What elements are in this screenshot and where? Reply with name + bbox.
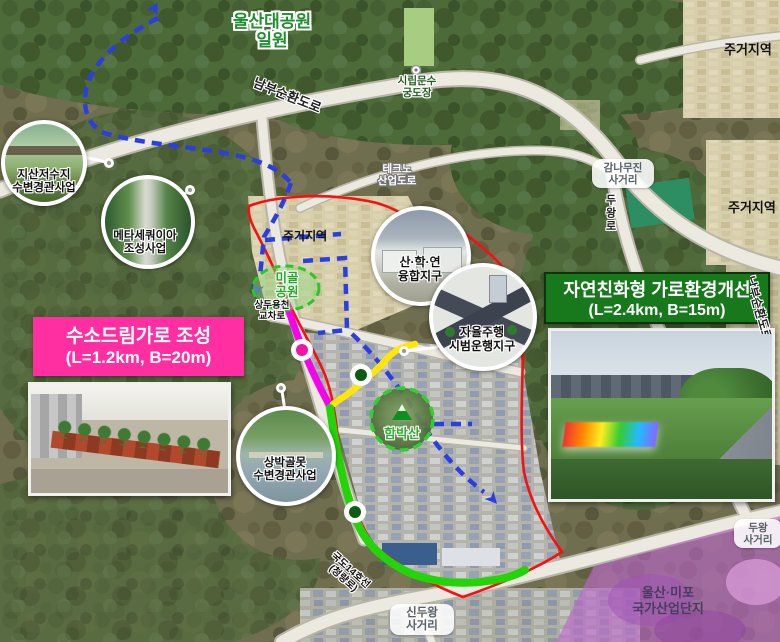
eco-project-spec: (L=2.4km, B=15m) [546, 301, 768, 320]
project-map: 수소드림가로 조성 (L=1.2km, B=20m) 자연친화형 가로환경개선 … [0, 0, 780, 642]
hydrogen-route-marker [291, 339, 313, 361]
connector-dot [399, 346, 409, 356]
gamnamu-intersection-bubble: 감나무진 사거리 [592, 159, 654, 188]
hydrogen-project-photo [28, 382, 231, 496]
callout-circle-sangbak [236, 406, 336, 506]
migol-park-label: 미골 공원 [264, 272, 310, 299]
eco-route-marker-bottom [344, 501, 366, 523]
road-label-nambu-right: 남부순환도로 [750, 274, 776, 334]
callout-label-meta: 메타세쿼이아 조성사업 [94, 230, 196, 255]
connector-dot [185, 185, 195, 195]
eco-project-photo [548, 328, 775, 502]
road-label-nambu-right-clip: 남부순환도로 [750, 272, 778, 334]
residential-label-top-right: 주거지역 [724, 39, 772, 58]
residential-label-center: 주거지역 [283, 227, 327, 244]
callout-label-sangbak: 상박골못 수변경관사업 [235, 457, 335, 482]
road-label-duwang: 두왕로 [602, 194, 618, 233]
sangdu-crossing-label: 상두용천 교차로 [246, 301, 298, 322]
callout-label-sanhak: 산·학·연 융합지구 [371, 256, 469, 283]
auto-photo-building [489, 275, 507, 303]
eco-project-title: 자연친화형 가로환경개선 [546, 279, 768, 301]
hydrogen-project-spec: (L=1.2km, B=20m) [33, 348, 244, 368]
hambaksan-label: 함박산 [374, 423, 430, 442]
park-title: 울산대공원 일원 [218, 12, 326, 50]
connector-dot [104, 158, 114, 168]
archery-marker-dot [412, 66, 421, 75]
callout-label-jisan: 지산저수지 수변경관사업 [0, 169, 88, 194]
photo-rainbow-lights [562, 422, 658, 447]
connector-dot [276, 383, 286, 393]
photo-foreground [551, 459, 772, 499]
sinduwang-intersection-bubble: 신두왕 사거리 [390, 604, 454, 635]
eco-route-marker-top [350, 364, 372, 386]
hydrogen-project-title: 수소드림가로 조성 [33, 325, 244, 348]
jisan-photo-detail [5, 146, 83, 155]
archery-label: 시립문수 궁도장 [394, 76, 440, 99]
callout-label-auto: 자율주행 시범운행지구 [426, 326, 538, 353]
residential-label-right: 주거지역 [728, 197, 776, 216]
photo-ground [31, 469, 228, 493]
hydrogen-project-box: 수소드림가로 조성 (L=1.2km, B=20m) [33, 317, 244, 376]
duwang-intersection-bubble: 두왕 사거리 [734, 519, 780, 548]
eco-project-box: 자연친화형 가로환경개선 (L=2.4km, B=15m) [544, 272, 770, 324]
industrial-complex-label: 울산·미포 국가산업단지 [606, 585, 730, 617]
road-label-techno: 테크노 산업도로 [366, 163, 428, 187]
